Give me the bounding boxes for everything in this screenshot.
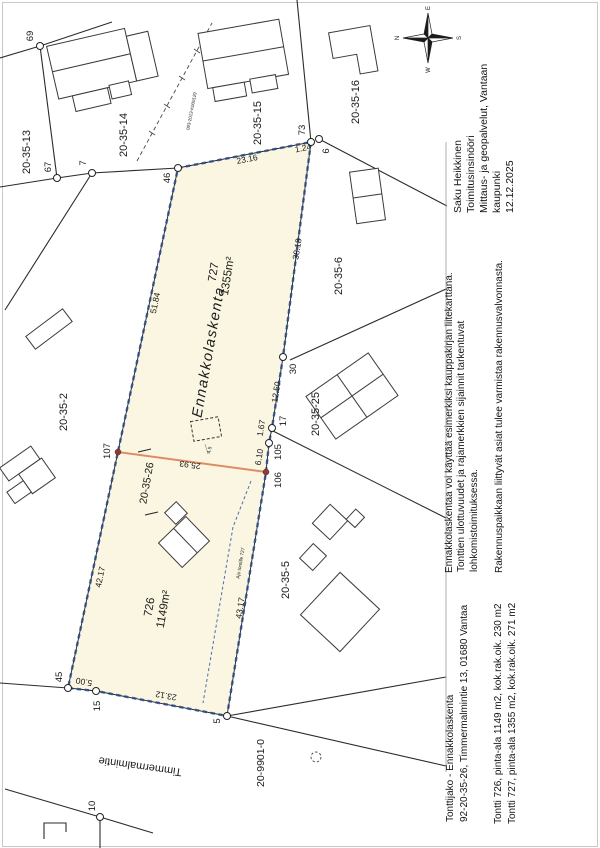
label-20-35-2: 20-35-2 [58, 393, 70, 431]
well-symbol [311, 752, 321, 762]
plot2-info: Tontti 727, pinta-ala 1355 m2, kok.rak.o… [506, 569, 520, 824]
note-3-text: Rakennuspaikkaan liittyvät asiat tulee v… [494, 255, 507, 573]
property-id: 92-20-35-26, Timmermalmintie 13, 01680 V… [458, 644, 472, 822]
point-label-17: 17 [278, 416, 289, 427]
dim-12-50: 12.50 [269, 380, 282, 403]
point-label-46: 46 [162, 173, 173, 184]
building-20-35-5-main [300, 572, 379, 651]
label-20-35-16: 20-35-16 [350, 80, 362, 124]
survey-ref-label: 093-2013-K000129 [185, 91, 197, 130]
building-20-35-6 [350, 168, 386, 224]
point-label-67: 67 [43, 162, 54, 173]
point-label-45: 45 [54, 672, 65, 683]
label-20-35-6: 20-35-6 [333, 257, 345, 295]
footer-plots-block: Tontti 726, pinta-ala 1149 m2, kok.rak.o… [492, 569, 519, 824]
surveyor-title: Toimitusinsinööri [465, 48, 478, 213]
point-label-107: 107 [102, 443, 113, 459]
point-label-10: 10 [87, 801, 98, 812]
plot1-info: Tontti 726, pinta-ala 1149 m2, kok.rak.o… [492, 569, 506, 824]
label-20-35-15: 20-35-15 [252, 101, 264, 145]
note-2: Tonttien ulottuvuudet ja rajamerkkien si… [456, 257, 481, 572]
scanned-map-page: E S W N 20-35-13 20-35-14 20-35-15 20-35… [0, 0, 600, 848]
dim-43-17: 43.17 [233, 596, 246, 619]
note-2-line1: Tonttien ulottuvuudet ja rajamerkkien si… [456, 257, 469, 572]
point-label-6: 6 [321, 148, 332, 153]
point-label-15: 15 [92, 701, 103, 712]
surveyor-org-line2: kaupunki [491, 48, 504, 213]
compass-n-label: N [395, 36, 401, 40]
surveyor-block: Saku Heikkinen Toimitusinsinööri Mittaus… [452, 48, 517, 213]
building-20-35-5-small [300, 544, 327, 571]
point-label-105: 105 [273, 444, 284, 460]
building-20-35-2 [26, 309, 72, 349]
label-20-35-25: 20-35-25 [310, 392, 322, 436]
point-label-5: 5 [212, 718, 223, 723]
point-label-7: 7 [78, 160, 89, 165]
survey-date: 12.12.2025 [504, 48, 517, 213]
setback-label: 4.5 [206, 446, 213, 454]
note-1-text: Ennakkolaskentaa voi käyttää esimerkiksi… [444, 258, 457, 573]
footer-title-block: Tonttijako - Ennakkolaskenta 92-20-35-26… [444, 644, 471, 822]
note-2-line2: lohkomistoimituksessa. [469, 257, 482, 572]
point-label-69: 69 [25, 31, 36, 42]
building-cluster-west [0, 445, 55, 505]
surveyor-name: Saku Heikkinen [452, 48, 465, 213]
label-20-35-14: 20-35-14 [118, 113, 130, 157]
building-20-35-16 [329, 26, 378, 79]
label-20-35-5: 20-35-5 [280, 561, 292, 599]
note-1: Ennakkolaskentaa voi käyttää esimerkiksi… [444, 258, 457, 573]
compass-s-label: S [457, 36, 463, 40]
doc-type: Tonttijako - Ennakkolaskenta [444, 644, 458, 822]
dim-38-18: 38.18 [290, 237, 303, 260]
point-label-30: 30 [288, 364, 299, 375]
point-label-73: 73 [297, 125, 308, 136]
compass-e-label: E [426, 6, 432, 10]
note-3: Rakennuspaikkaan liittyvät asiat tulee v… [494, 255, 507, 573]
building-20-35-14 [47, 23, 162, 114]
street-name-label: Timmermalmintie [98, 754, 183, 778]
label-20-35-13: 20-35-13 [21, 130, 33, 174]
building-20-35-5-upper [312, 494, 364, 546]
building-20-35-15 [198, 19, 291, 102]
point-label-106: 106 [273, 472, 284, 488]
surveyor-org-line1: Mittaus- ja geopalvelut, Vantaan [478, 48, 491, 213]
road-parcel-label: 20-9901-0 [255, 739, 267, 787]
compass-w-label: W [426, 67, 432, 73]
